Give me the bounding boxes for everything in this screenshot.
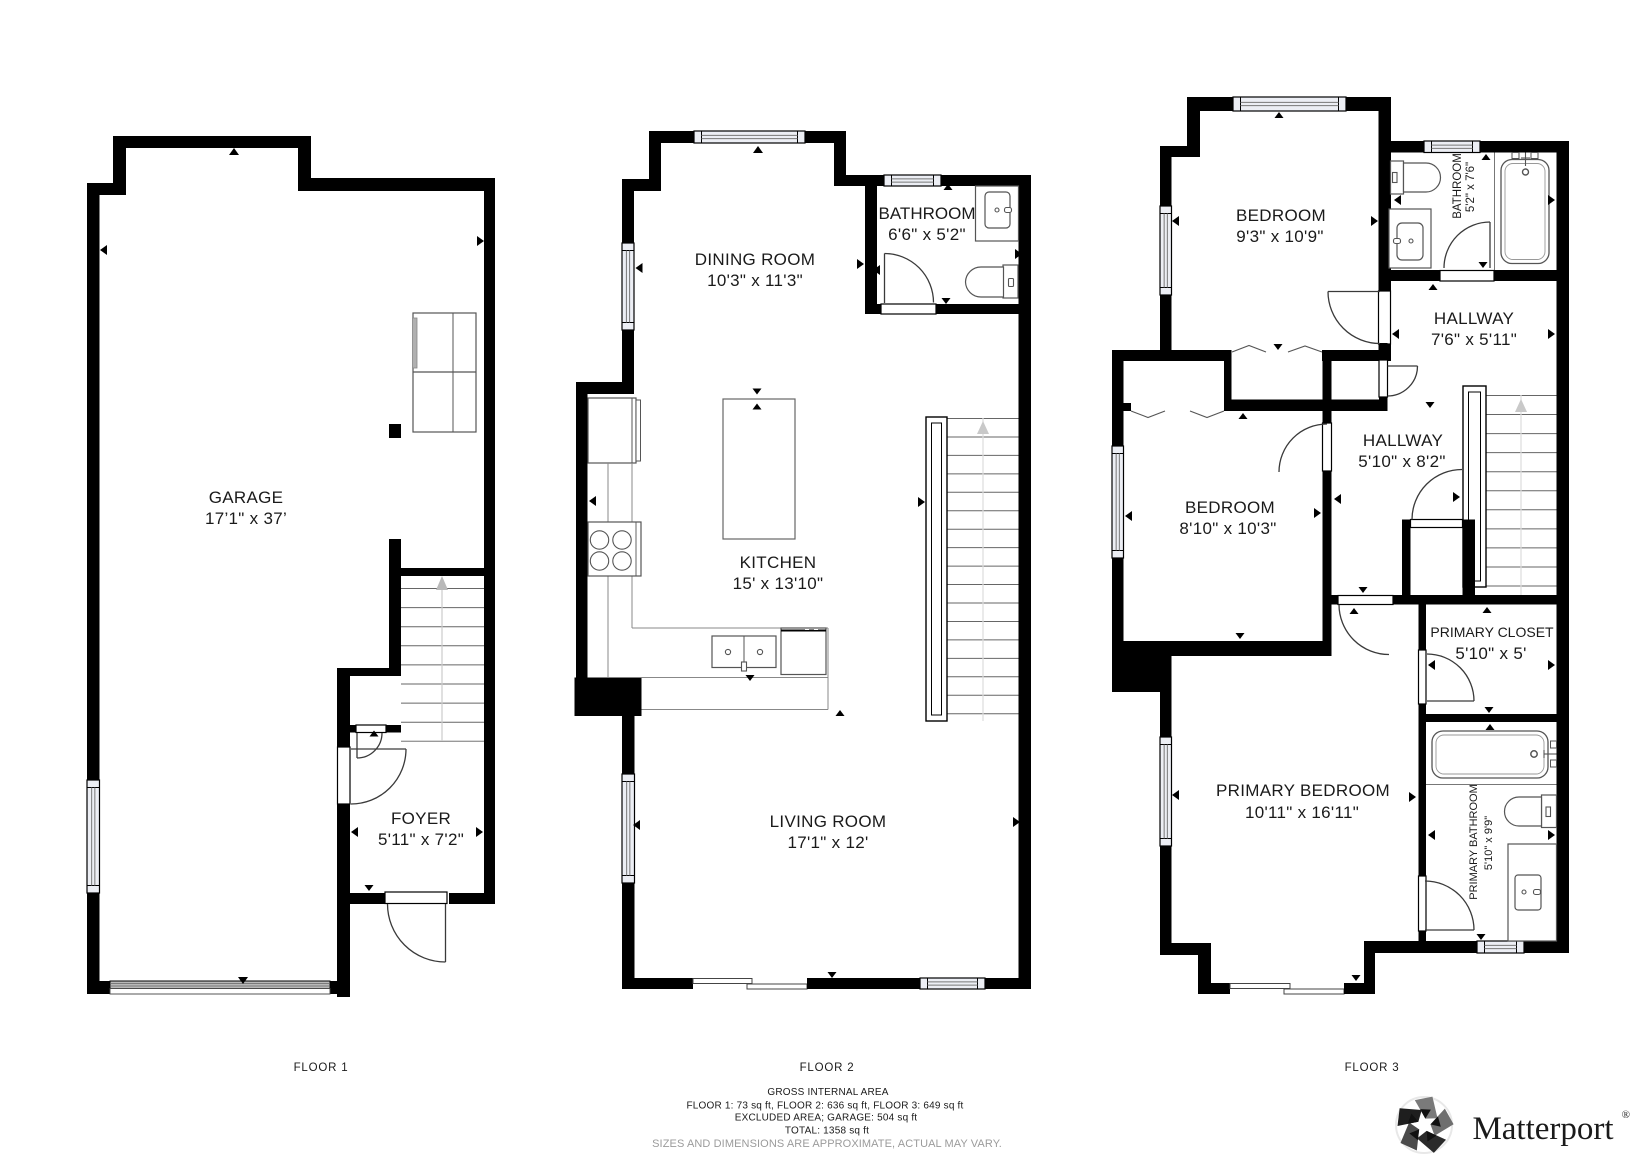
svg-text:5'2" x 7'6": 5'2" x 7'6" (1465, 162, 1477, 212)
svg-text:PRIMARY CLOSET: PRIMARY CLOSET (1430, 624, 1554, 640)
svg-text:HALLWAY: HALLWAY (1363, 431, 1443, 450)
svg-text:FLOOR 1: FLOOR 1 (294, 1062, 349, 1074)
svg-text:10'11" x 16'11": 10'11" x 16'11" (1245, 803, 1359, 822)
svg-text:6'6" x 5'2": 6'6" x 5'2" (888, 225, 966, 244)
svg-text:BATHROOM: BATHROOM (879, 204, 976, 223)
svg-text:FOYER: FOYER (391, 809, 451, 828)
svg-text:BEDROOM: BEDROOM (1185, 498, 1275, 517)
svg-text:EXCLUDED AREA; GARAGE: 504 sq: EXCLUDED AREA; GARAGE: 504 sq ft (735, 1113, 918, 1124)
svg-text:17'1" x 12': 17'1" x 12' (787, 833, 868, 852)
svg-text:GARAGE: GARAGE (209, 488, 284, 507)
svg-text:8'10" x 10'3": 8'10" x 10'3" (1179, 519, 1276, 538)
svg-text:5'11" x 7'2": 5'11" x 7'2" (378, 830, 464, 849)
svg-text:9'3" x 10'9": 9'3" x 10'9" (1236, 227, 1323, 246)
svg-text:BATHROOM: BATHROOM (1452, 153, 1464, 219)
svg-text:PRIMARY BEDROOM: PRIMARY BEDROOM (1216, 781, 1390, 800)
svg-text:®: ® (1622, 1109, 1631, 1121)
svg-text:DINING ROOM: DINING ROOM (695, 250, 815, 269)
svg-text:FLOOR 3: FLOOR 3 (1345, 1062, 1400, 1074)
svg-text:FLOOR 1: 73 sq ft, FLOOR 2: 63: FLOOR 1: 73 sq ft, FLOOR 2: 636 sq ft, F… (686, 1101, 963, 1112)
svg-text:KITCHEN: KITCHEN (740, 553, 817, 572)
svg-text:PRIMARY BATHROOM: PRIMARY BATHROOM (1468, 784, 1480, 900)
svg-text:7'6" x 5'11": 7'6" x 5'11" (1431, 330, 1517, 349)
svg-text:15' x 13'10": 15' x 13'10" (733, 574, 824, 593)
svg-text:GROSS INTERNAL AREA: GROSS INTERNAL AREA (767, 1087, 888, 1098)
svg-text:BEDROOM: BEDROOM (1236, 206, 1326, 225)
svg-text:5'10" x 8'2": 5'10" x 8'2" (1358, 452, 1445, 471)
svg-text:TOTAL: 1358 sq ft: TOTAL: 1358 sq ft (785, 1126, 869, 1137)
svg-text:Matterport: Matterport (1472, 1111, 1613, 1147)
svg-text:5'10" x 9'9": 5'10" x 9'9" (1483, 816, 1495, 870)
svg-text:LIVING ROOM: LIVING ROOM (770, 812, 887, 831)
svg-text:FLOOR 2: FLOOR 2 (800, 1062, 855, 1074)
svg-text:SIZES AND DIMENSIONS ARE APPRO: SIZES AND DIMENSIONS ARE APPROXIMATE, AC… (652, 1138, 1002, 1150)
svg-text:5'10" x 5': 5'10" x 5' (1455, 644, 1526, 663)
svg-text:17’1" x 37’: 17’1" x 37’ (205, 509, 287, 528)
svg-text:10'3" x 11'3": 10'3" x 11'3" (707, 271, 803, 290)
svg-text:HALLWAY: HALLWAY (1434, 309, 1514, 328)
